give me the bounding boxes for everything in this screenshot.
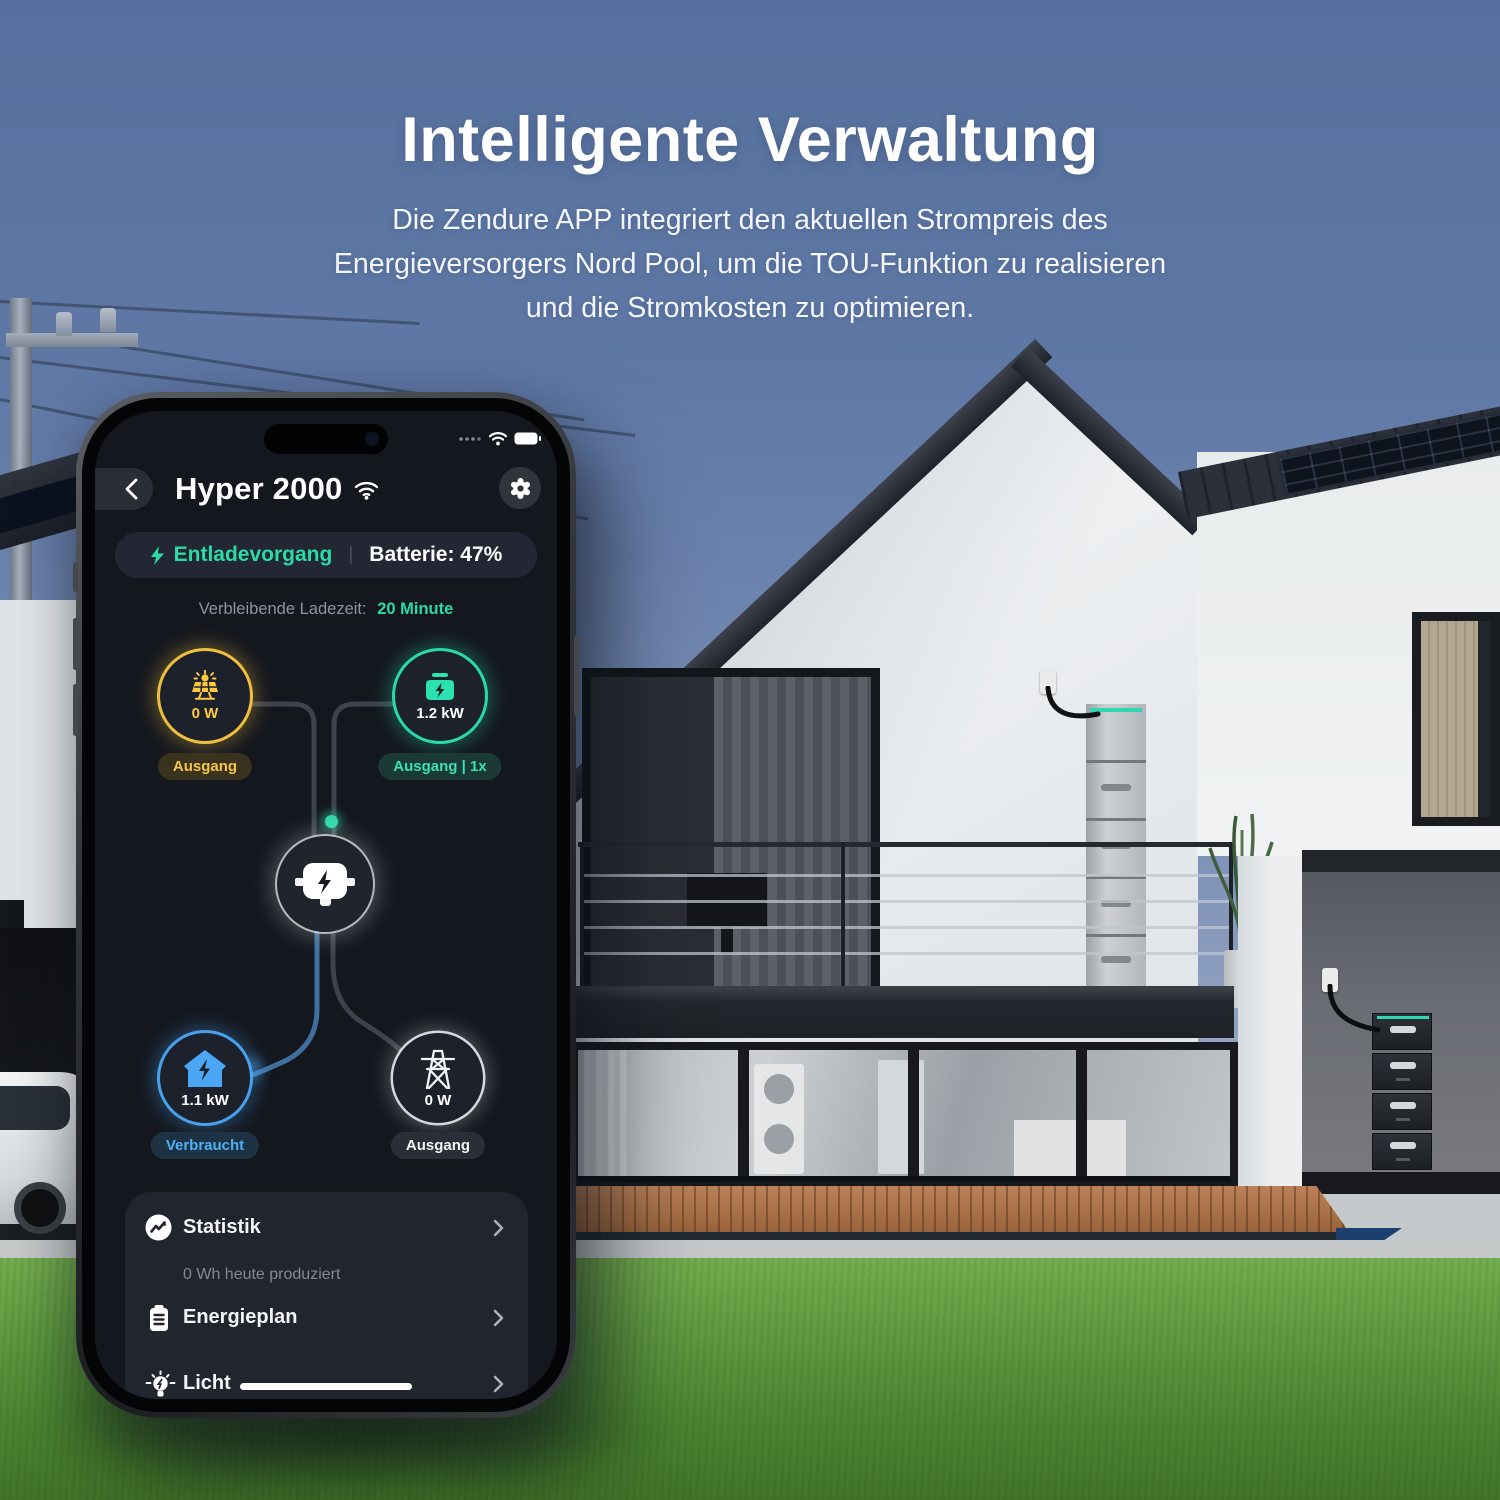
deck-planks bbox=[562, 1186, 1352, 1236]
menu-item-label: Licht bbox=[183, 1372, 231, 1395]
utility-pole-crossarm bbox=[6, 333, 138, 347]
subtitle-line: Die Zendure APP integriert den aktuellen… bbox=[0, 198, 1500, 242]
balcony-railing bbox=[578, 842, 1233, 847]
subtitle-line: Energieversorgers Nord Pool, um die TOU-… bbox=[0, 242, 1500, 286]
car-wheel bbox=[14, 1182, 66, 1234]
home-badge: Verbraucht bbox=[151, 1132, 259, 1159]
light-icon bbox=[145, 1370, 176, 1399]
power-hub-icon bbox=[295, 858, 355, 910]
smartphone: Hyper 2000 bbox=[76, 392, 576, 1418]
solar-badge: Ausgang bbox=[158, 753, 252, 780]
menu-item-label: Energieplan bbox=[183, 1306, 297, 1329]
volume-up-button[interactable] bbox=[73, 618, 78, 670]
porch-floor bbox=[1302, 1172, 1500, 1194]
menu-card: Statistik 0 Wh heute produziert bbox=[125, 1192, 528, 1399]
car-window bbox=[0, 1086, 70, 1130]
chevron-right-icon bbox=[493, 1309, 504, 1327]
solar-node[interactable]: 0 W bbox=[160, 651, 250, 741]
home-value: 1.1 kW bbox=[181, 1092, 229, 1109]
battery-seam bbox=[1086, 934, 1146, 937]
power-tower-icon bbox=[418, 1047, 458, 1089]
slatted-window bbox=[1412, 612, 1500, 826]
washer-drum bbox=[764, 1074, 794, 1104]
battery-node[interactable]: 1.2 kW bbox=[395, 651, 485, 741]
upper-floor-window bbox=[582, 668, 880, 1000]
battery-badge: Ausgang | 1x bbox=[378, 753, 501, 780]
washer-drum bbox=[764, 1124, 794, 1154]
wooden-deck bbox=[562, 1186, 1352, 1236]
statistics-icon bbox=[145, 1214, 172, 1241]
flow-active-dot bbox=[325, 815, 338, 828]
solar-panel-icon bbox=[187, 670, 223, 702]
solar-value: 0 W bbox=[192, 705, 219, 722]
app-screen: Hyper 2000 bbox=[95, 411, 557, 1399]
power-cable bbox=[1324, 984, 1394, 1044]
grid-badge: Ausgang bbox=[391, 1132, 485, 1159]
chevron-right-icon bbox=[493, 1375, 504, 1393]
balcony-floor bbox=[566, 986, 1234, 1038]
balcony-battery-stack bbox=[1086, 704, 1146, 990]
door-mullion bbox=[1076, 1050, 1087, 1182]
page-title: Intelligente Verwaltung bbox=[0, 104, 1500, 176]
kitchen-island bbox=[1014, 1120, 1126, 1176]
volume-down-button[interactable] bbox=[73, 684, 78, 736]
porch-ceiling bbox=[1302, 850, 1500, 872]
house-bolt-icon bbox=[182, 1047, 228, 1089]
curtain bbox=[584, 1050, 628, 1182]
railing-cable bbox=[578, 874, 1233, 877]
window-opening bbox=[1478, 621, 1491, 817]
home-node[interactable]: 1.1 kW bbox=[160, 1033, 250, 1123]
chevron-right-icon bbox=[493, 1219, 504, 1237]
subtitle-line: und die Stromkosten zu optimieren. bbox=[0, 286, 1500, 330]
page-subtitle: Die Zendure APP integriert den aktuellen… bbox=[0, 198, 1500, 330]
door-mullion bbox=[738, 1050, 749, 1182]
battery-handle bbox=[1101, 956, 1131, 963]
railing-post bbox=[841, 842, 845, 992]
battery-seam bbox=[1086, 818, 1146, 821]
hub-node[interactable] bbox=[277, 836, 373, 932]
railing-cable bbox=[578, 926, 1233, 929]
energy-plan-icon bbox=[145, 1304, 172, 1332]
door-mullion bbox=[908, 1050, 919, 1182]
grid-value: 0 W bbox=[425, 1092, 452, 1109]
monitor-stand bbox=[721, 927, 733, 953]
menu-item-subtitle: 0 Wh heute produziert bbox=[183, 1266, 340, 1284]
action-button[interactable] bbox=[73, 562, 78, 592]
menu-item-label: Statistik bbox=[183, 1216, 261, 1239]
door-track bbox=[578, 1176, 1230, 1182]
ground-floor-glass-doors bbox=[570, 1042, 1238, 1190]
railing-cable bbox=[578, 952, 1233, 955]
home-indicator[interactable] bbox=[240, 1383, 412, 1390]
hero-text-block: Intelligente Verwaltung Die Zendure APP … bbox=[0, 0, 1500, 330]
window-blinds bbox=[714, 677, 871, 991]
railing-cable bbox=[578, 900, 1233, 903]
railing-post bbox=[580, 842, 584, 992]
menu-item-licht[interactable]: Licht bbox=[125, 1362, 528, 1399]
battery-handle bbox=[1101, 784, 1131, 791]
phone-bezel: Hyper 2000 bbox=[82, 398, 570, 1412]
power-button[interactable] bbox=[574, 636, 579, 716]
battery-seam bbox=[1086, 760, 1146, 763]
marketing-image: Intelligente Verwaltung Die Zendure APP … bbox=[0, 0, 1500, 1500]
washer-dryer-stack bbox=[754, 1064, 804, 1174]
house-corner-column bbox=[1238, 856, 1302, 1236]
menu-item-energieplan[interactable]: Energieplan bbox=[125, 1296, 528, 1340]
battery-value: 1.2 kW bbox=[416, 705, 464, 722]
power-cable bbox=[1040, 686, 1110, 736]
menu-item-statistik[interactable]: Statistik 0 Wh heute produziert bbox=[125, 1206, 528, 1250]
grid-node[interactable]: 0 W bbox=[393, 1033, 483, 1123]
battery-icon bbox=[422, 671, 458, 702]
